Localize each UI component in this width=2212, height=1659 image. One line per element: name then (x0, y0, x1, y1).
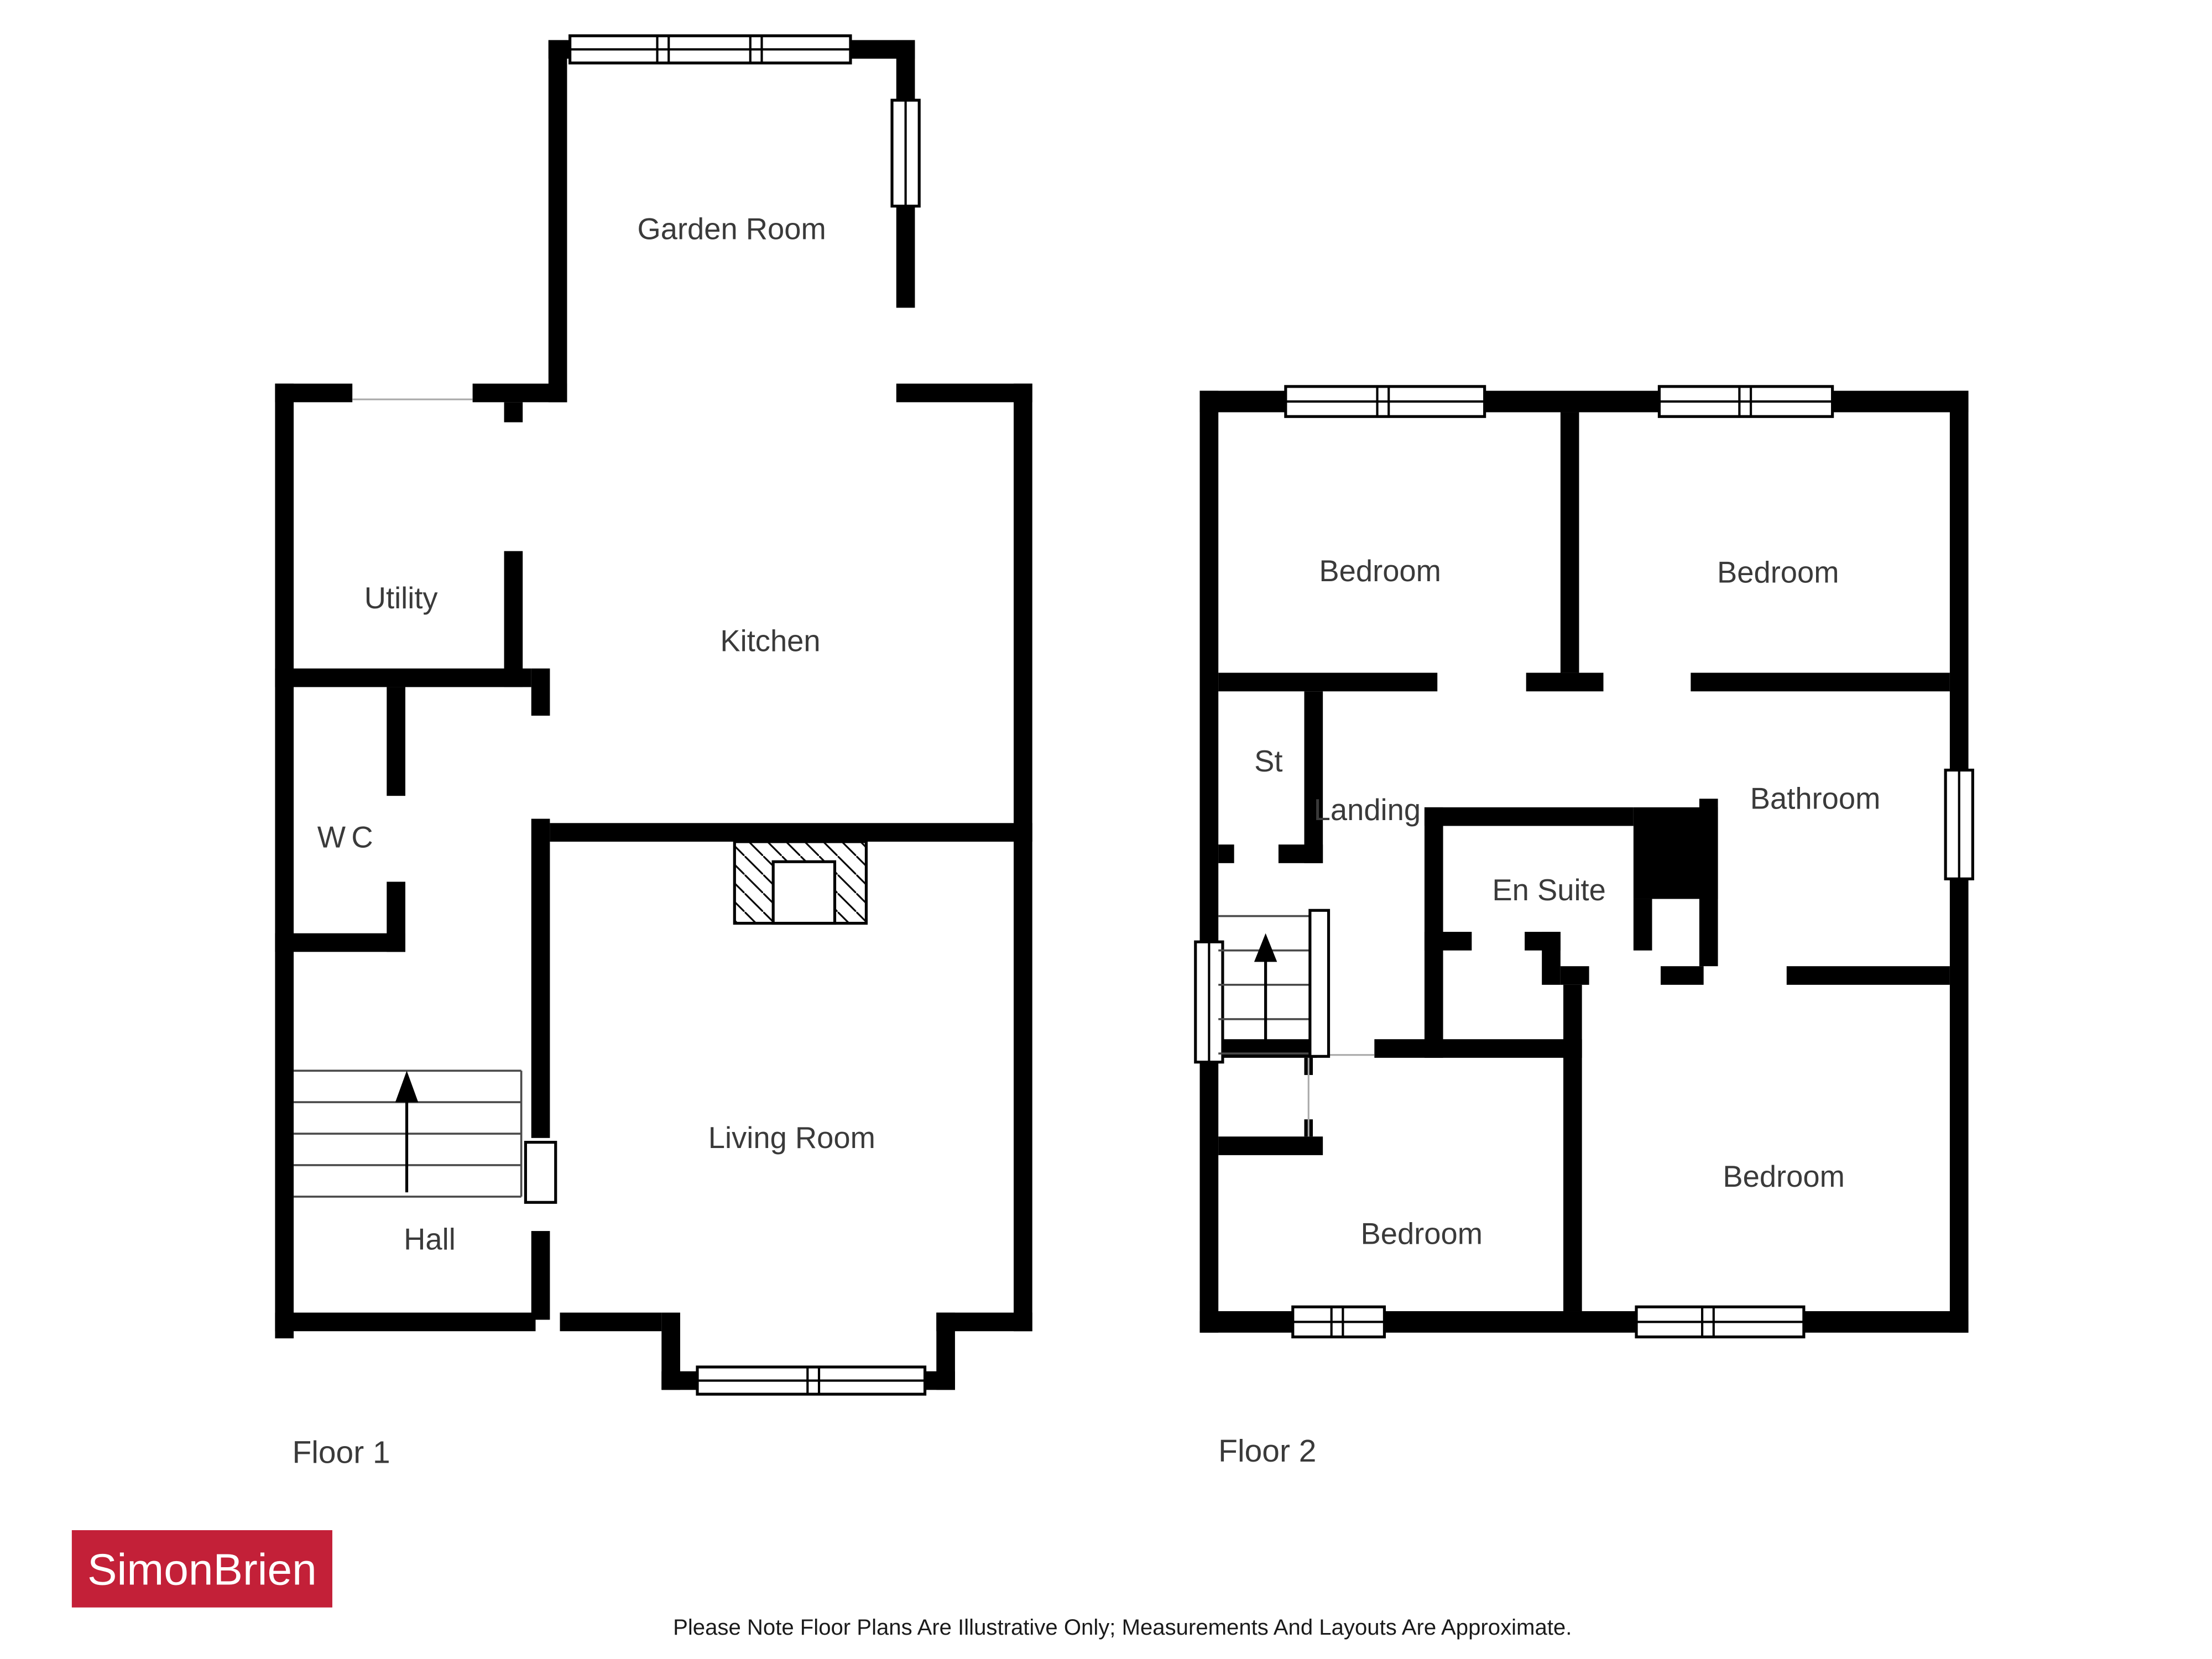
disclaimer-text: Please Note Floor Plans Are Illustrative… (673, 1615, 1572, 1640)
room-label-wc: WC (317, 820, 379, 854)
floorplan-page: Garden Room Utility Kitchen WC Hall Livi… (0, 0, 2212, 1659)
window-icon (697, 1367, 925, 1394)
floor-1-plan: Garden Room Utility Kitchen WC Hall Livi… (275, 36, 1032, 1470)
floor-1-title: Floor 1 (292, 1434, 390, 1470)
door-leaf (525, 1142, 555, 1203)
stairs-up-arrow-icon (395, 1071, 418, 1192)
stair-banister (1310, 910, 1329, 1056)
room-label-bedroom-top-right: Bedroom (1717, 555, 1839, 589)
room-label-bedroom-bottom-left: Bedroom (1360, 1217, 1483, 1250)
chimney-breast (1634, 807, 1718, 899)
room-label-bedroom-bottom-right: Bedroom (1723, 1160, 1845, 1193)
window-icon (1636, 1307, 1804, 1337)
room-label-kitchen: Kitchen (720, 624, 820, 658)
floor-2-title: Floor 2 (1218, 1433, 1316, 1469)
window-icon (1945, 770, 1973, 879)
room-label-living-room: Living Room (708, 1121, 875, 1155)
floor-2-walls (1200, 391, 1969, 1333)
room-label-hall: Hall (404, 1223, 456, 1256)
room-label-bathroom: Bathroom (1750, 781, 1881, 815)
brand-logo-text: SimonBrien (87, 1545, 317, 1594)
room-label-utility: Utility (364, 581, 439, 615)
floorplan-canvas: Garden Room Utility Kitchen WC Hall Livi… (0, 0, 2212, 1659)
stairs-icon (1218, 910, 1328, 1056)
window-icon (570, 36, 851, 63)
window-icon (1659, 387, 1832, 416)
window-icon (1293, 1307, 1385, 1337)
room-label-bedroom-top-left: Bedroom (1319, 554, 1441, 588)
stairs-icon (294, 1071, 521, 1197)
window-icon (1196, 942, 1223, 1062)
room-label-st: St (1254, 744, 1282, 778)
window-icon (1286, 387, 1485, 416)
fireplace-icon (734, 842, 866, 924)
room-label-landing: Landing (1314, 793, 1421, 827)
room-label-garden-room: Garden Room (637, 212, 826, 246)
floor-2-plan: Bedroom Bedroom St Landing Bathroom En S… (1196, 387, 1973, 1469)
window-icon (892, 100, 919, 206)
brand-logo: SimonBrien (72, 1530, 332, 1608)
room-label-en-suite: En Suite (1492, 873, 1605, 907)
